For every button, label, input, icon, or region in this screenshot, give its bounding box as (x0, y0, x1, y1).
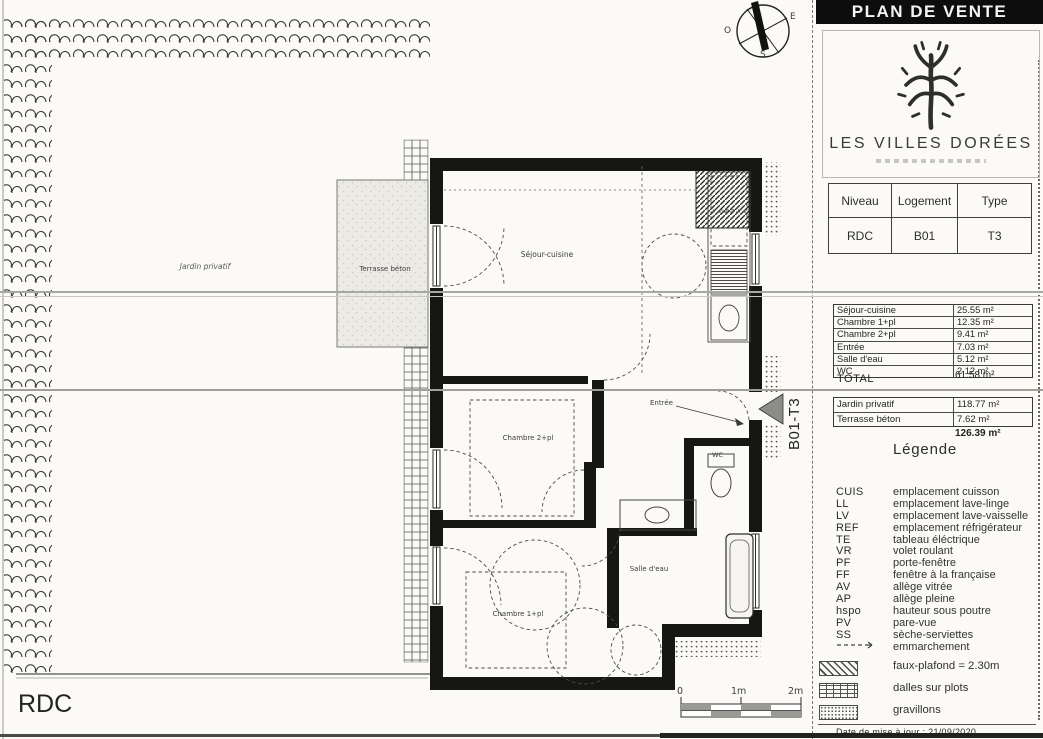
exterior-value: 118.77 m² (953, 398, 1032, 412)
exterior-label: Terrasse béton (834, 413, 953, 427)
surface-label: Séjour-cuisine (834, 305, 953, 316)
info-col-niveau: Niveau (829, 184, 891, 217)
faux-plafond-zone (696, 164, 749, 228)
legend-desc: hauteur sous poutre (893, 605, 991, 617)
table-row: Chambre 2+pl 9.41 m² (834, 328, 1032, 340)
exterior-table: Jardin privatif 118.77 m² Terrasse béton… (833, 397, 1033, 427)
compass-east-label: E (790, 12, 796, 22)
legend-item: hspohauteur sous poutre (836, 605, 1036, 617)
hatch-label: gravillons (893, 704, 941, 716)
scale-bar (681, 697, 801, 717)
surface-value: 12.35 m² (953, 317, 1032, 328)
table-row: Séjour-cuisine 25.55 m² (834, 305, 1032, 316)
floor-plan-canvas (0, 0, 812, 739)
legend-abbr: hspo (836, 605, 893, 617)
legend-abbr: TE (836, 534, 893, 546)
legend-abbr: LV (836, 510, 893, 522)
footer-divider (818, 724, 1036, 725)
brand-logo-box: LES VILLES DORÉES (822, 30, 1040, 178)
room-label-chambre2: Chambre 2+pl (488, 434, 568, 442)
surfaces-total-value: 61.58 m² (955, 370, 994, 381)
legend-desc: tableau éléctrique (893, 534, 980, 546)
legend-desc: pare-vue (893, 617, 936, 629)
legend-desc: sèche-serviettes (893, 629, 973, 641)
exterior-total-value: 126.39 m² (955, 428, 1001, 439)
sheet-title-banner: PLAN DE VENTE (816, 0, 1043, 24)
legend-desc: emplacement lave-vaisselle (893, 510, 1028, 522)
legend-item-emmarchement: emmarchement (836, 641, 1036, 653)
legend-item: FFfenêtre à la française (836, 569, 1036, 581)
table-row: Chambre 1+pl 12.35 m² (834, 316, 1032, 328)
legend-desc: allège vitrée (893, 581, 952, 593)
table-row: Salle d'eau 5.12 m² (834, 353, 1032, 365)
legend-desc: fenêtre à la française (893, 569, 996, 581)
surface-value: 5.12 m² (953, 354, 1032, 365)
scan-artifact-line (0, 291, 1043, 293)
legend-item: APallège pleine (836, 593, 1036, 605)
exterior-label: Jardin privatif (834, 398, 953, 412)
legend-item: SSsèche-serviettes (836, 629, 1036, 641)
legend-abbr: AP (836, 593, 893, 605)
legend-title: Légende (815, 441, 1035, 458)
table-row: Entrée 7.03 m² (834, 341, 1032, 353)
entree-pointer (676, 406, 744, 426)
brand-tagline-illegible (876, 159, 986, 163)
surface-value: 25.55 m² (953, 305, 1032, 316)
surface-value: 7.03 m² (953, 342, 1032, 353)
surface-label: Salle d'eau (834, 354, 953, 365)
hatch-label: faux-plafond = 2.30m (893, 660, 999, 672)
info-col-logement: Logement (891, 184, 957, 217)
hatch-label: dalles sur plots (893, 682, 968, 694)
scale-tick-1m: 1m (731, 686, 746, 697)
brand-name: LES VILLES DORÉES (829, 135, 1032, 153)
legend-list: CUISemplacement cuisson LLemplacement la… (836, 486, 1036, 653)
legend-abbr: SS (836, 629, 893, 641)
room-label-sejour: Séjour-cuisine (505, 250, 589, 259)
garden-hedge (4, 18, 430, 678)
table-row: Terrasse béton 7.62 m² (834, 412, 1032, 427)
surfaces-total-label: TOTAL (837, 373, 874, 385)
unit-label: B01-T3 (786, 362, 803, 450)
compass-south-label: S (760, 50, 766, 60)
legend-item: VRvolet roulant (836, 546, 1036, 558)
hatch-swatch-gravillons (819, 705, 858, 720)
room-label-wc: WC (712, 451, 734, 459)
surface-label: Chambre 2+pl (834, 329, 953, 340)
scan-artifact-line (0, 296, 1043, 297)
table-row: Jardin privatif 118.77 m² (834, 398, 1032, 412)
entrance-arrow-icon (759, 394, 783, 424)
surface-label: Entrée (834, 342, 953, 353)
terrace-slab (337, 180, 428, 347)
room-label-jardin: Jardin privatif (150, 262, 260, 271)
legend-abbr: PV (836, 617, 893, 629)
scan-artifact-line (0, 389, 1043, 391)
room-label-terrasse: Terrasse béton (352, 265, 418, 273)
unit-info-table: Niveau Logement Type RDC B01 T3 (828, 183, 1032, 254)
legend-desc: emmarchement (893, 641, 969, 653)
legend-desc: allège pleine (893, 593, 955, 605)
legend-item: PFporte-fenêtre (836, 557, 1036, 569)
sidebar-left-rule (812, 0, 813, 739)
tree-logo-icon (894, 37, 968, 133)
legend-abbr: PF (836, 557, 893, 569)
info-val-logement: B01 (891, 217, 957, 253)
legend-desc: volet roulant (893, 545, 953, 557)
room-label-salle-eau: Salle d'eau (618, 565, 680, 573)
compass-west-label: O (724, 26, 731, 36)
legend-abbr: CUIS (836, 486, 893, 498)
scan-artifact-line (660, 733, 1043, 738)
scale-tick-2m: 2m (788, 686, 803, 697)
info-val-type: T3 (957, 217, 1031, 253)
hatch-swatch-faux-plafond (819, 661, 858, 676)
surface-value: 9.41 m² (953, 329, 1032, 340)
scale-tick-0: 0 (677, 686, 683, 697)
legend-abbr: FF (836, 569, 893, 581)
sheet-title: PLAN DE VENTE (852, 2, 1008, 22)
legend-desc: porte-fenêtre (893, 557, 956, 569)
legend-item: CUISemplacement cuisson (836, 486, 1036, 498)
legend-abbr: LL (836, 498, 893, 510)
room-label-entree: Entrée (650, 399, 692, 407)
legend-desc: emplacement réfrigérateur (893, 522, 1022, 534)
hatch-swatch-dalles (819, 683, 858, 698)
compass-icon (737, 1, 789, 57)
legend-abbr: AV (836, 581, 893, 593)
legend-item: LVemplacement lave-vaisselle (836, 510, 1036, 522)
legend-item: AVallège vitrée (836, 581, 1036, 593)
plan-de-vente-sheet: Jardin privatif Terrasse béton Séjour-cu… (0, 0, 1043, 739)
info-val-niveau: RDC (829, 217, 891, 253)
level-label: RDC (18, 690, 72, 719)
exterior-value: 7.62 m² (953, 413, 1032, 427)
legend-item: TEtableau éléctrique (836, 534, 1036, 546)
surfaces-table: Séjour-cuisine 25.55 m² Chambre 1+pl 12.… (833, 304, 1033, 378)
emmarchement-arrow-icon (836, 640, 893, 653)
legend-desc: emplacement cuisson (893, 486, 999, 498)
room-label-chambre1: Chambre 1+pl (478, 610, 558, 618)
legend-item: LLemplacement lave-linge (836, 498, 1036, 510)
info-col-type: Type (957, 184, 1031, 217)
legend-abbr: VR (836, 545, 893, 557)
legend-item: PVpare-vue (836, 617, 1036, 629)
legend-item: REFemplacement réfrigérateur (836, 522, 1036, 534)
surface-label: Chambre 1+pl (834, 317, 953, 328)
legend-desc: emplacement lave-linge (893, 498, 1009, 510)
legend-abbr: REF (836, 522, 893, 534)
